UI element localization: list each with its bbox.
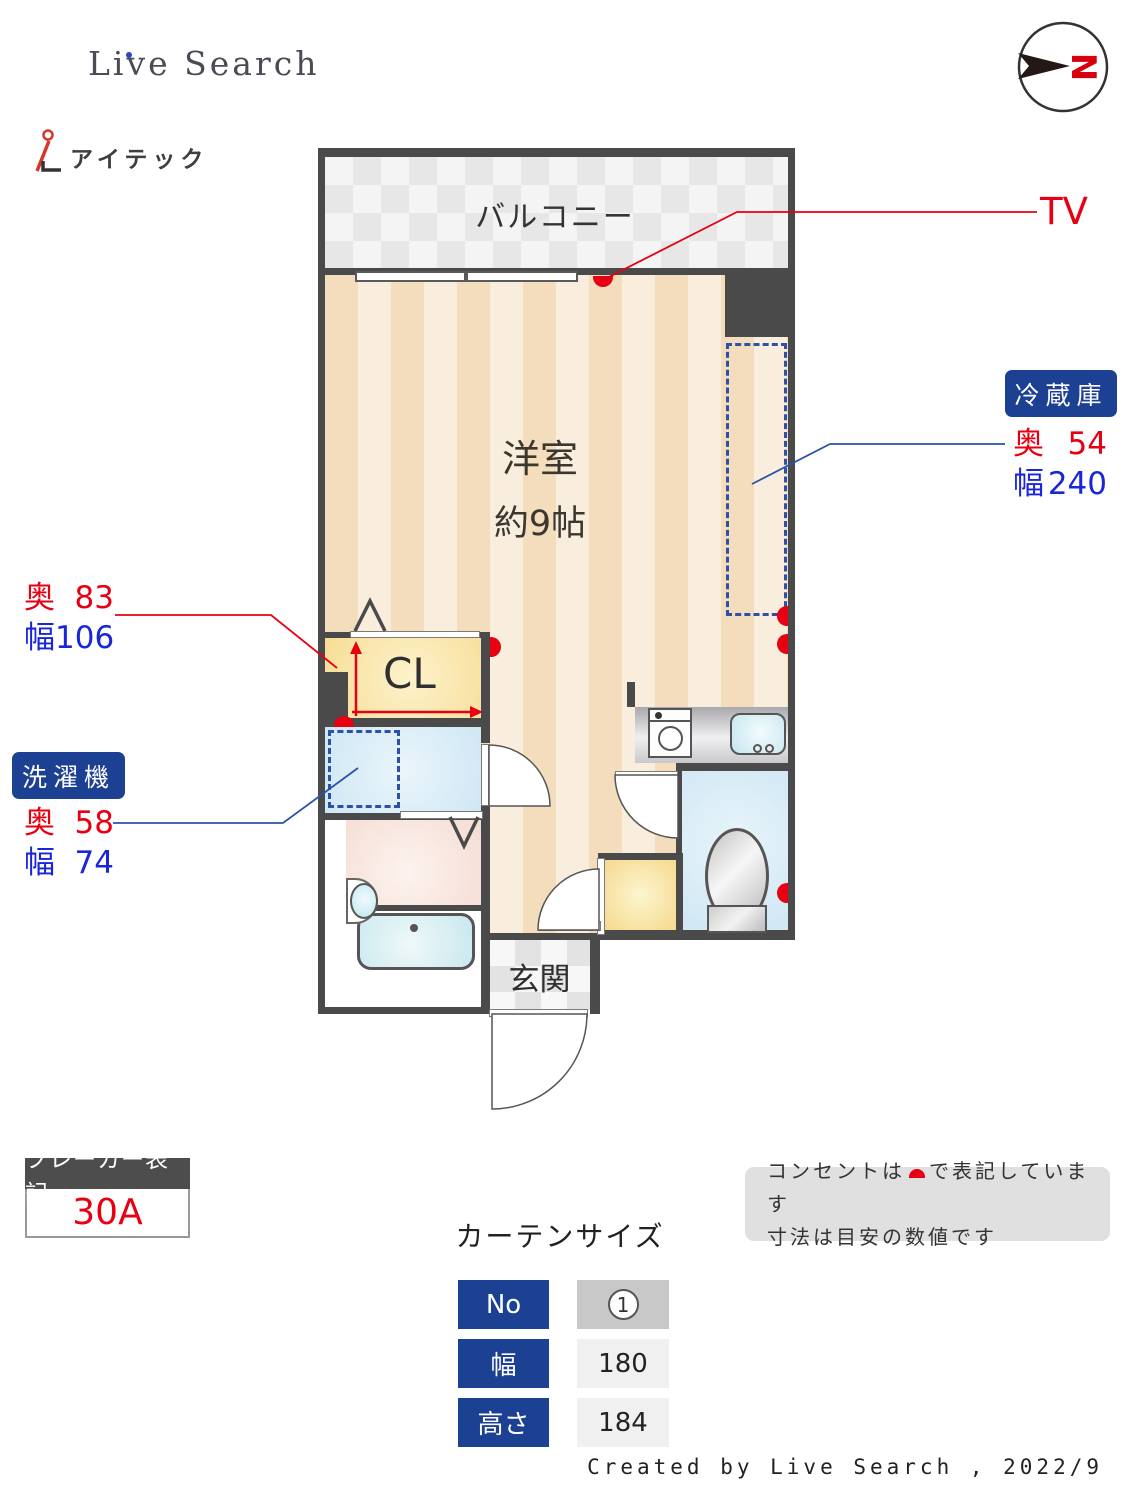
tv-label: TV [1040, 190, 1088, 233]
bathtub-drain [410, 924, 418, 932]
closet-dimensions: 奥83 幅106 [24, 578, 114, 658]
wall-bath-bottom [318, 1007, 490, 1014]
circled-number-icon: 1 [608, 1289, 639, 1320]
curtain-row-no-value: 1 [577, 1280, 669, 1329]
balcony-label: バルコニー [395, 192, 715, 236]
wall-storage-right [676, 860, 683, 933]
balcony-window-pane [355, 271, 466, 282]
bathroom-door [400, 811, 483, 819]
stove-burner-icon [658, 726, 683, 751]
fridge-width-value: 240 [1048, 464, 1107, 504]
toilet-door-leaf [615, 771, 678, 779]
wall-hall-bottom [598, 853, 683, 860]
closet-depth-value: 83 [75, 578, 114, 618]
washer-dashed-outline [328, 730, 400, 808]
compass-north-letter: N [1063, 53, 1103, 81]
pillar [725, 275, 788, 337]
curtain-row-no-label: No [458, 1280, 549, 1329]
wall-top [318, 148, 795, 157]
wall-tub-divider [372, 905, 481, 911]
sink-tap-icon [765, 744, 774, 753]
agency-name: アイテック [70, 140, 208, 174]
live-search-logo: Live Search [88, 44, 319, 83]
breaker-title: ブレーカー表記 [25, 1158, 190, 1189]
wall-toilet-top [676, 763, 795, 771]
closet-depth-key: 奥 [24, 578, 55, 618]
balcony-window-pane [466, 271, 578, 282]
entrance-door-leaf [489, 1009, 588, 1017]
washer-depth-key: 奥 [24, 803, 55, 843]
room-size-label: 約9帖 [420, 495, 660, 546]
washer-depth-value: 58 [75, 803, 114, 843]
storage-room [605, 860, 676, 930]
closet-label: CL [383, 649, 436, 698]
washer-badge: 洗濯機 [12, 752, 125, 799]
fridge-dimensions: 奥54 幅240 [1013, 424, 1107, 504]
curtain-row-width-value: 180 [577, 1339, 669, 1388]
agency-logo-icon [33, 128, 65, 174]
fridge-dashed-outline [726, 343, 787, 616]
fridge-depth-key: 奥 [1013, 424, 1044, 464]
note-line-2: 寸法は目安の数値です [767, 1221, 1110, 1254]
toilet-tank [707, 905, 767, 933]
bathtub [357, 913, 475, 970]
fridge-width-key: 幅 [1013, 464, 1044, 504]
closet-width-key: 幅 [24, 618, 55, 658]
curtain-row-height-label: 高さ [458, 1398, 549, 1447]
wall-right [788, 148, 795, 940]
washer-width-key: 幅 [24, 843, 55, 883]
fridge-depth-value: 54 [1068, 424, 1107, 464]
entrance-door-arc [492, 1014, 587, 1109]
note-line1-pre: コンセントは [767, 1159, 905, 1183]
bath-sink [350, 883, 378, 919]
closet-door [350, 631, 480, 638]
washer-width-value: 74 [75, 843, 114, 883]
outlet-legend-icon [909, 1169, 925, 1178]
curtain-table-title: カーテンサイズ [420, 1215, 700, 1255]
washer-dimensions: 奥58 幅74 [24, 803, 114, 883]
curtain-row-height-value: 184 [577, 1398, 669, 1447]
note-line-1: コンセントはで表記しています [767, 1155, 1110, 1221]
entrance-label: 玄関 [489, 954, 590, 999]
stove-knob-icon [655, 712, 662, 719]
wall-genkan-top [481, 933, 600, 940]
compass-icon: N [1018, 23, 1107, 111]
hall-door-leaf [538, 921, 601, 931]
floorplan-page: Live Search アイテック [0, 0, 1125, 1500]
curtain-row-width-label: 幅 [458, 1339, 549, 1388]
washroom-door-leaf [481, 744, 489, 806]
wall-left [318, 148, 325, 1014]
wall-kitchen-stub [627, 682, 635, 707]
wall-genkan-right [590, 940, 600, 1014]
notes-box: コンセントはで表記しています 寸法は目安の数値です [745, 1167, 1110, 1241]
closet-width-value: 106 [55, 618, 114, 658]
breaker-box: ブレーカー表記 30A [25, 1158, 190, 1238]
sink-tap-icon [753, 744, 762, 753]
room-name-label: 洋室 [420, 428, 660, 483]
closet-leader-line [115, 615, 337, 668]
logo-dot-icon [126, 52, 132, 58]
footer-credit: Created by Live Search , 2022/9 [587, 1455, 1103, 1479]
fridge-badge: 冷蔵庫 [1005, 370, 1117, 417]
